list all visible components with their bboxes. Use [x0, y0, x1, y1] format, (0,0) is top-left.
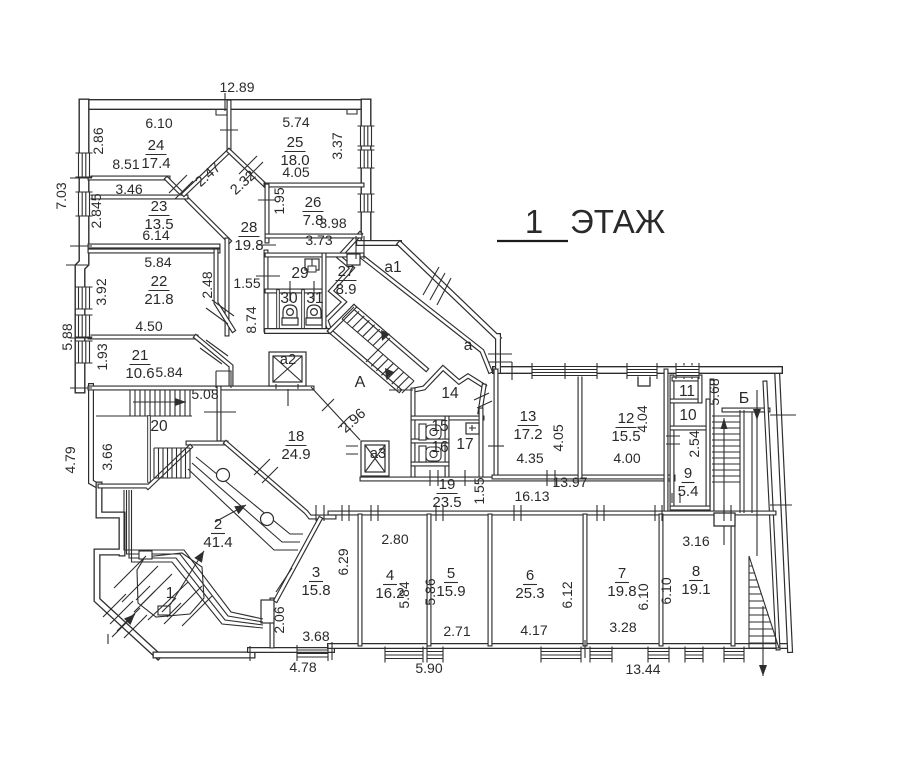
svg-text:3.16: 3.16: [682, 533, 709, 549]
svg-text:21.8: 21.8: [144, 291, 173, 308]
svg-text:17.2: 17.2: [513, 426, 542, 443]
svg-text:26: 26: [305, 194, 322, 211]
svg-text:2.54: 2.54: [686, 430, 702, 457]
svg-text:25.3: 25.3: [515, 585, 544, 602]
svg-text:1.55: 1.55: [471, 477, 487, 504]
svg-text:5.84: 5.84: [396, 581, 412, 608]
svg-text:12: 12: [618, 410, 635, 427]
svg-text:20: 20: [150, 418, 168, 435]
svg-text:5.84: 5.84: [155, 364, 182, 380]
svg-text:22: 22: [151, 273, 168, 290]
svg-text:5: 5: [447, 565, 455, 582]
svg-text:9: 9: [684, 465, 692, 482]
svg-text:23: 23: [151, 198, 168, 215]
svg-text:8.9: 8.9: [336, 281, 357, 298]
svg-text:4.05: 4.05: [550, 424, 566, 451]
svg-text:2: 2: [214, 516, 222, 533]
svg-text:6.29: 6.29: [335, 548, 351, 575]
svg-text:8.51: 8.51: [112, 156, 139, 172]
svg-text:а3: а3: [370, 446, 386, 462]
svg-text:7.03: 7.03: [53, 182, 69, 209]
svg-text:3.73: 3.73: [305, 232, 332, 248]
svg-text:10.6: 10.6: [125, 365, 154, 382]
svg-text:4.50: 4.50: [135, 318, 162, 334]
svg-text:2.06: 2.06: [271, 606, 287, 633]
svg-text:5.68: 5.68: [706, 378, 722, 405]
svg-text:2.80: 2.80: [381, 531, 408, 547]
svg-text:13.44: 13.44: [625, 661, 660, 677]
svg-text:6.12: 6.12: [559, 581, 575, 608]
svg-text:а: а: [464, 337, 473, 354]
svg-text:29: 29: [291, 265, 308, 282]
svg-text:31: 31: [306, 290, 323, 307]
svg-text:6: 6: [526, 567, 534, 584]
svg-text:16.13: 16.13: [514, 488, 549, 504]
svg-text:2.48: 2.48: [199, 271, 215, 298]
svg-text:13.97: 13.97: [552, 474, 587, 490]
svg-text:4.00: 4.00: [613, 450, 640, 466]
svg-text:24: 24: [148, 137, 165, 154]
svg-text:3: 3: [312, 564, 320, 581]
svg-text:28: 28: [241, 219, 258, 236]
svg-text:15.8: 15.8: [301, 582, 330, 599]
svg-text:15.9: 15.9: [436, 583, 465, 600]
svg-text:7: 7: [618, 565, 626, 582]
svg-text:19.8: 19.8: [607, 583, 636, 600]
svg-text:16: 16: [431, 439, 448, 456]
svg-text:17: 17: [456, 436, 473, 453]
svg-text:19.8: 19.8: [234, 237, 263, 254]
svg-text:а2: а2: [280, 352, 296, 368]
svg-text:23.5: 23.5: [432, 494, 461, 511]
svg-text:3.28: 3.28: [609, 619, 636, 635]
svg-text:4.17: 4.17: [520, 622, 547, 638]
svg-text:5.90: 5.90: [415, 660, 442, 676]
svg-text:5.86: 5.86: [422, 578, 438, 605]
svg-text:5.4: 5.4: [678, 483, 699, 500]
svg-text:4.04: 4.04: [634, 405, 650, 432]
svg-text:12.89: 12.89: [219, 79, 254, 95]
svg-text:14: 14: [441, 385, 459, 402]
svg-text:5.84: 5.84: [144, 254, 171, 270]
svg-text:1.95: 1.95: [271, 187, 287, 214]
svg-text:Б: Б: [739, 390, 750, 407]
svg-text:1.55: 1.55: [233, 275, 260, 291]
svg-text:ЭТАЖ: ЭТАЖ: [570, 203, 666, 240]
svg-text:24.9: 24.9: [281, 446, 310, 463]
svg-text:4.35: 4.35: [516, 450, 543, 466]
svg-text:27: 27: [338, 263, 355, 280]
svg-text:2.71: 2.71: [443, 623, 470, 639]
svg-text:5.08: 5.08: [191, 386, 218, 402]
svg-text:5.88: 5.88: [59, 323, 75, 350]
svg-text:5.74: 5.74: [282, 114, 309, 130]
svg-text:25: 25: [287, 134, 304, 151]
svg-text:а1: а1: [384, 259, 401, 276]
svg-text:30: 30: [280, 290, 298, 307]
svg-text:41.4: 41.4: [203, 534, 232, 551]
svg-text:3.98: 3.98: [319, 215, 346, 231]
svg-text:15: 15: [431, 418, 448, 435]
svg-text:17.4: 17.4: [141, 155, 170, 172]
svg-text:3.66: 3.66: [99, 443, 115, 470]
svg-text:3.37: 3.37: [329, 132, 345, 159]
svg-text:2.86: 2.86: [90, 127, 106, 154]
svg-text:19: 19: [439, 476, 456, 493]
svg-text:6.14: 6.14: [142, 227, 169, 243]
svg-text:13: 13: [520, 408, 537, 425]
svg-text:6.10: 6.10: [658, 577, 674, 604]
svg-text:8: 8: [692, 563, 700, 580]
svg-text:19.1: 19.1: [681, 581, 710, 598]
svg-text:3.46: 3.46: [115, 181, 142, 197]
svg-text:1.93: 1.93: [94, 343, 110, 370]
svg-text:10: 10: [679, 407, 697, 424]
svg-text:21: 21: [132, 347, 149, 364]
svg-text:А: А: [355, 374, 366, 391]
svg-text:4.79: 4.79: [62, 446, 78, 473]
svg-text:11: 11: [679, 383, 695, 400]
svg-text:6.10: 6.10: [145, 115, 172, 131]
svg-text:4: 4: [386, 567, 394, 584]
svg-text:1: 1: [525, 203, 543, 240]
svg-text:6.10: 6.10: [635, 583, 651, 610]
svg-text:3.68: 3.68: [302, 628, 329, 644]
svg-text:8.74: 8.74: [243, 306, 259, 333]
svg-text:4.05: 4.05: [282, 164, 309, 180]
svg-text:2.845: 2.845: [88, 193, 104, 228]
svg-text:18: 18: [288, 428, 305, 445]
svg-text:3.92: 3.92: [93, 278, 109, 305]
svg-text:4.78: 4.78: [289, 659, 316, 675]
svg-text:1: 1: [166, 585, 175, 602]
